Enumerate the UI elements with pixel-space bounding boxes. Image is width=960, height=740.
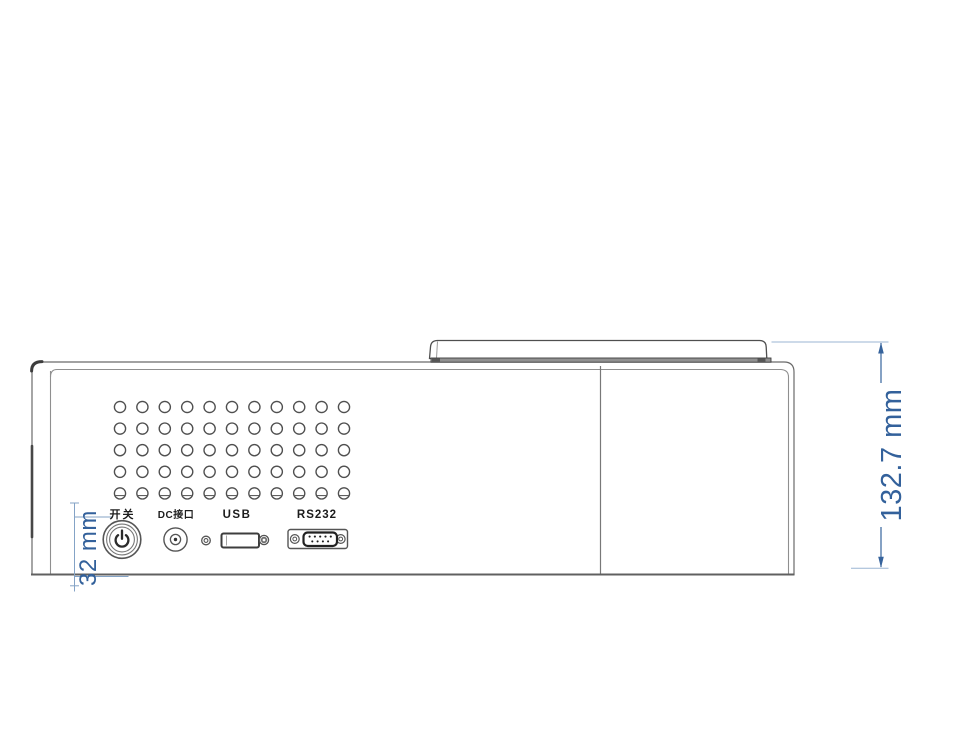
vent-hole xyxy=(114,488,125,499)
vent-hole xyxy=(249,466,260,477)
vent-hole xyxy=(114,445,125,456)
vent-hole xyxy=(249,423,260,434)
diagram-canvas: 开关 DC接口 USB RS232 32 mm 132.7 mm xyxy=(0,0,960,740)
top-bar xyxy=(430,341,772,363)
vent-hole xyxy=(137,445,148,456)
vent-hole xyxy=(316,423,327,434)
device-line-drawing xyxy=(0,0,960,740)
vent-hole xyxy=(204,423,215,434)
rs232-pin xyxy=(330,536,332,538)
vent-hole xyxy=(338,423,349,434)
rs232-label: RS232 xyxy=(291,509,343,521)
vent-hole xyxy=(294,466,305,477)
vent-hole xyxy=(226,488,237,499)
vent-hole xyxy=(159,401,170,412)
vent-hole xyxy=(294,445,305,456)
vent-hole xyxy=(316,466,327,477)
vent-hole xyxy=(137,401,148,412)
rs232-pin xyxy=(324,536,326,538)
rs232-pin xyxy=(309,536,311,538)
vent-hole xyxy=(294,401,305,412)
vent-hole xyxy=(159,445,170,456)
vent-hole xyxy=(114,423,125,434)
arrow-up xyxy=(878,343,884,354)
top-bar-base xyxy=(431,358,771,362)
vent-hole xyxy=(338,445,349,456)
vent-hole xyxy=(249,488,260,499)
rs232-pin xyxy=(314,536,316,538)
rs232-pin xyxy=(322,540,324,542)
vent-hole xyxy=(182,466,193,477)
usb-label: USB xyxy=(217,509,257,521)
vent-hole xyxy=(226,445,237,456)
top-bar-outline xyxy=(430,341,767,359)
vent-hole xyxy=(159,488,170,499)
vent-hole xyxy=(294,488,305,499)
vent-hole xyxy=(182,445,193,456)
vent-hole xyxy=(271,466,282,477)
vent-hole xyxy=(338,488,349,499)
vent-hole xyxy=(137,466,148,477)
vent-hole xyxy=(249,401,260,412)
vent-hole xyxy=(294,423,305,434)
vent-hole xyxy=(271,445,282,456)
rs232-connector-icon xyxy=(288,530,348,549)
arrow-down xyxy=(878,557,884,568)
vent-hole xyxy=(114,401,125,412)
vent-hole xyxy=(204,488,215,499)
dimension-32mm-text: 32 mm xyxy=(76,506,102,590)
vent-hole xyxy=(271,401,282,412)
vent-hole xyxy=(271,423,282,434)
dc-input-label: DC接口 xyxy=(146,510,206,522)
rs232-pin xyxy=(317,540,319,542)
vent-hole xyxy=(137,423,148,434)
dimension-132mm-text: 132.7 mm xyxy=(876,376,908,534)
vent-hole xyxy=(182,401,193,412)
top-bar-foot-left xyxy=(432,358,440,362)
rs232-pin xyxy=(311,540,313,542)
vent-hole xyxy=(114,466,125,477)
vent-hole xyxy=(204,445,215,456)
vent-hole xyxy=(182,488,193,499)
vent-hole xyxy=(226,466,237,477)
top-bar-foot-right xyxy=(758,358,766,362)
vent-hole xyxy=(338,401,349,412)
vent-hole xyxy=(159,423,170,434)
vent-hole xyxy=(316,401,327,412)
vent-hole xyxy=(338,466,349,477)
vent-hole xyxy=(182,423,193,434)
vent-hole xyxy=(159,466,170,477)
vent-hole xyxy=(204,401,215,412)
rs232-pin xyxy=(319,536,321,538)
vent-hole xyxy=(204,466,215,477)
vent-hole xyxy=(249,445,260,456)
rs232-pin xyxy=(327,540,329,542)
vent-hole xyxy=(271,488,282,499)
vent-hole xyxy=(226,423,237,434)
vent-hole xyxy=(316,488,327,499)
vent-hole xyxy=(316,445,327,456)
vent-hole xyxy=(137,488,148,499)
vent-hole xyxy=(226,401,237,412)
